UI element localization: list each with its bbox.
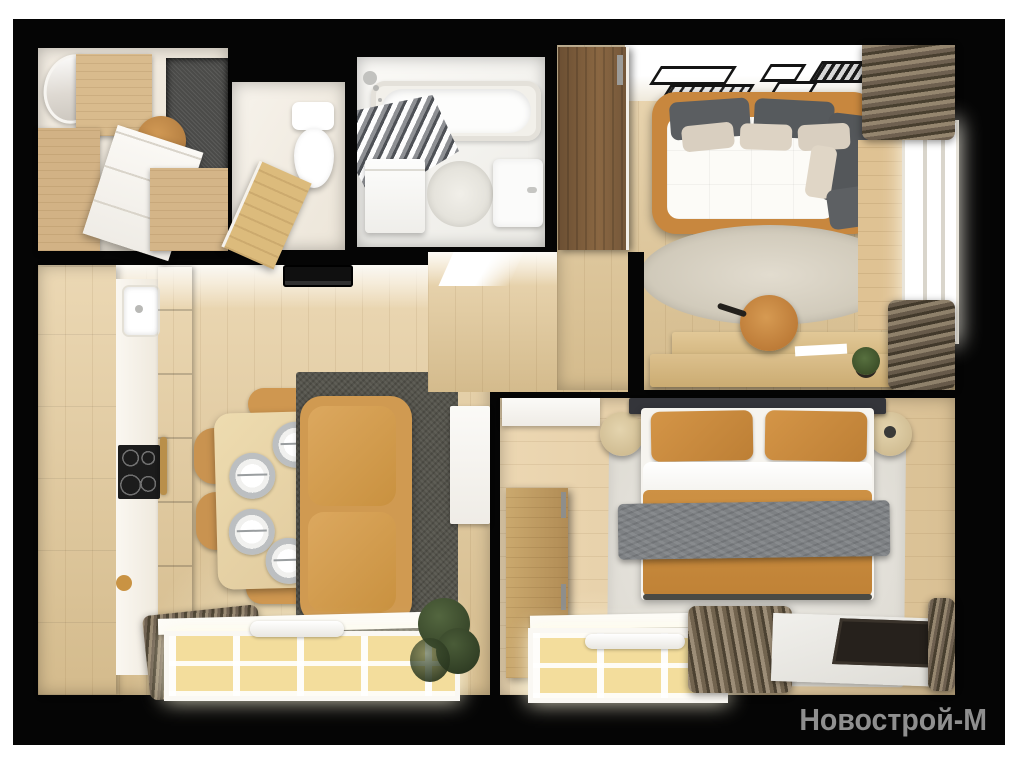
wardrobe-handle [561,492,566,518]
kitchen-tall-cabinets [38,267,116,695]
throw-blanket [618,500,891,560]
hallway-wardrobe-top [76,54,152,136]
room-bedroom [500,398,955,695]
office-curtain-bottom [888,300,955,390]
floorplan-render: Новострой-М [0,0,1017,768]
bedroom-radiator [585,634,685,649]
ceiling-light [283,265,353,287]
plant-foliage [410,638,450,682]
bedroom-curtain-right [928,598,955,691]
cooktop [118,445,160,499]
bed-foot-shadow [643,594,872,600]
toilet-cistern [292,102,334,130]
wall-shelf [649,66,737,85]
room-wc [232,82,345,250]
pillow-beige [681,121,735,152]
office-curtain-top [862,45,955,140]
tv-console [450,406,490,524]
office-chair [740,295,798,351]
render-canvas: Новострой-М [13,19,1005,745]
room-bathroom [357,57,545,247]
double-bed [635,398,880,603]
daybed-sofa [652,92,877,234]
bed-pillow [765,410,868,462]
wc-door [221,160,311,269]
faucet [135,305,143,313]
wall-corridor-office [628,252,644,392]
sink-faucet [527,187,537,193]
room-kitchen-living [38,265,490,695]
washing-machine [365,159,425,233]
oven-handle [160,437,167,495]
living-radiator [250,621,344,637]
hallway-wood-panel [150,168,228,251]
walnut-wardrobe [558,47,629,250]
shower-head [363,71,377,85]
wardrobe-handle [617,55,623,85]
room-living-office [557,45,955,390]
bath-mat [427,161,493,227]
sofa-cushion [308,512,396,612]
living-sofa [300,396,412,624]
watermark-text: Новострой-М [799,702,987,738]
bedroom-dresser [502,398,600,426]
place-setting [229,452,276,499]
small-pouf [116,575,132,591]
bed-pillow [651,410,754,462]
wardrobe-handle [561,584,566,610]
desk-plant [852,347,880,375]
sofa-cushion [308,406,396,506]
living-plant [408,598,480,695]
bathroom-sink [493,159,543,227]
vase [884,426,896,438]
pillow-beige [740,123,793,151]
room-hallway [38,48,228,251]
